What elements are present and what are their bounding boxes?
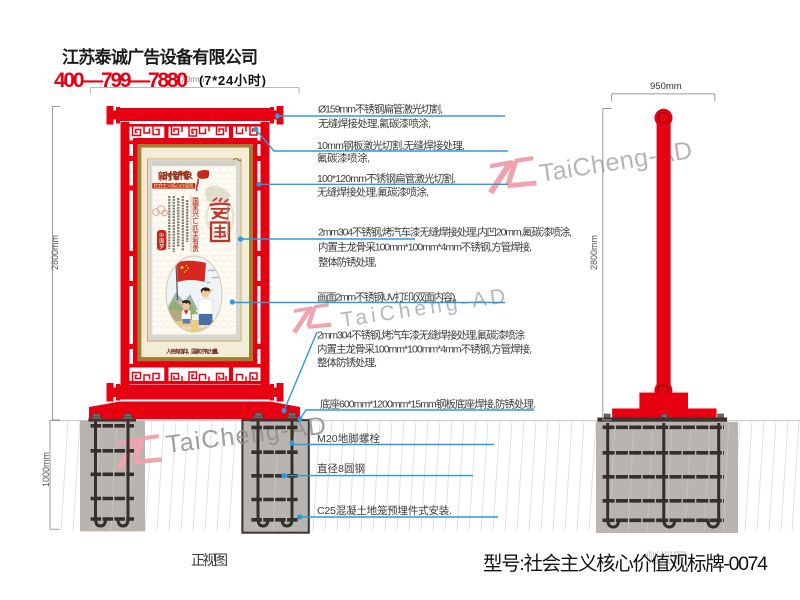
svg-text:江苏泰诚广告设备有限公司: 江苏泰诚广告设备有限公司 (62, 47, 258, 67)
svg-text:C25混凝土地笼预埋件式安装.: C25混凝土地笼预埋件式安装. (317, 504, 452, 517)
svg-text:950mm: 950mm (650, 81, 682, 92)
svg-text:2800mm: 2800mm (50, 235, 60, 270)
svg-text:Ø159mm不锈钢扁管激光切割,: Ø159mm不锈钢扁管激光切割, (318, 103, 443, 116)
svg-text:型号:社会主义核心价值观标牌-0074: 型号:社会主义核心价值观标牌-0074 (483, 553, 768, 575)
svg-text:整体防锈处理,: 整体防锈处理, (318, 256, 377, 269)
svg-text:新时代新气象: 新时代新气象 (158, 169, 193, 183)
svg-text:亡: 亡 (192, 216, 199, 225)
svg-text:氟碳漆喷涂,: 氟碳漆喷涂, (317, 152, 370, 165)
svg-text:人民有信仰，国家才有力量。: 人民有信仰，国家才有力量。 (165, 348, 222, 356)
svg-text:1000mm: 1000mm (41, 452, 51, 487)
svg-text:社会主义核心价值观: 社会主义核心价值观 (154, 183, 194, 190)
svg-text:梦: 梦 (159, 244, 164, 250)
svg-text:2mm304不锈钢,烤汽车漆无缝焊接处理,氟碳漆喷涂: 2mm304不锈钢,烤汽车漆无缝焊接处理,氟碳漆喷涂 (317, 329, 526, 342)
svg-text:内置主龙骨采100mm*100mm*4mm不锈钢,方管焊接,: 内置主龙骨采100mm*100mm*4mm不锈钢,方管焊接, (318, 241, 532, 254)
svg-text:2800mm: 2800mm (589, 235, 599, 270)
svg-text:2mm304不锈钢,烤汽车漆无缝焊接处理,内凹20mm,氟碳: 2mm304不锈钢,烤汽车漆无缝焊接处理,内凹20mm,氟碳漆喷涂, (318, 226, 572, 239)
svg-text:无缝焊接处理,氟碳漆喷涂,: 无缝焊接处理,氟碳漆喷涂, (317, 186, 429, 199)
svg-text:正视图: 正视图 (191, 552, 228, 568)
svg-text:责: 责 (192, 244, 199, 253)
svg-text:M20地脚螺栓: M20地脚螺栓 (317, 432, 381, 445)
svg-text:(7*24小时): (7*24小时) (199, 73, 266, 88)
svg-text:10mm钢板激光切割,无缝焊接处理,: 10mm钢板激光切割,无缝焊接处理, (317, 139, 465, 152)
svg-text:100*120mm不锈钢扁管激光切割,: 100*120mm不锈钢扁管激光切割, (317, 172, 456, 185)
svg-text:内置主龙骨采100mm*100mm*4mm不锈钢,方管焊接,: 内置主龙骨采100mm*100mm*4mm不锈钢,方管焊接, (317, 343, 532, 356)
svg-text:画面2mm不锈钢UV打印(双面内容),: 画面2mm不锈钢UV打印(双面内容), (317, 291, 457, 304)
svg-text:直径8圆钢: 直径8圆钢 (317, 462, 365, 475)
svg-text:底座600mm*1200mm*15mm钢板底座焊接,防锈处理: 底座600mm*1200mm*15mm钢板底座焊接,防锈处理. (320, 398, 536, 411)
svg-text:400—799—7880: 400—799—7880 (54, 69, 188, 92)
svg-text:无缝焊接处理,氟碳漆喷涂,: 无缝焊接处理,氟碳漆喷涂, (318, 117, 431, 130)
svg-text:整体防锈处理,: 整体防锈处理, (317, 356, 377, 369)
